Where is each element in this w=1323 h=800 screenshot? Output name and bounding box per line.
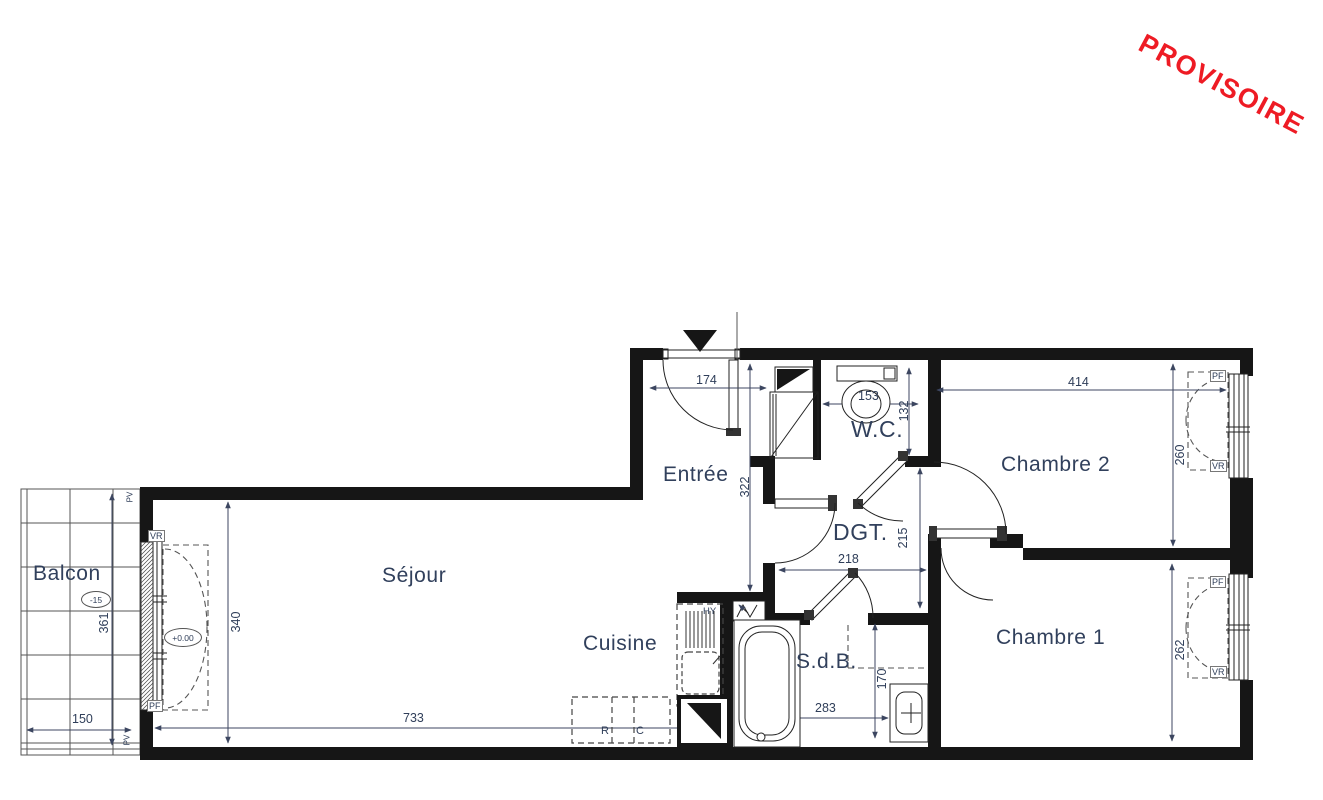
door-wc [853, 451, 908, 521]
window-tag-vr: VR [1210, 666, 1227, 678]
room-label-chambre1: Chambre 1 [996, 626, 1105, 650]
dim-balcon-width: 150 [72, 712, 93, 726]
washer-space [848, 625, 926, 668]
window-tag-pf: PF [1210, 370, 1226, 382]
bathtub [734, 620, 800, 747]
dim-ch2-depth: 260 [1173, 445, 1187, 466]
dim-sdb-width: 283 [815, 701, 836, 715]
washbasin [890, 684, 928, 742]
dim-wc-width: 153 [858, 389, 879, 403]
dim-dgt-width: 218 [838, 552, 859, 566]
dim-entree-depth: 322 [738, 477, 752, 498]
entry-door-opening [663, 349, 740, 359]
floor-plan-drawing [0, 0, 1323, 800]
appliance-label-cooker: C [636, 725, 644, 737]
window-tag-vr: VR [148, 530, 165, 542]
dim-dgt-depth: 215 [896, 528, 910, 549]
technical-shaft-kitchen [679, 697, 729, 745]
elevation-balcon: -15 [81, 591, 111, 608]
room-label-balcon: Balcon [33, 562, 101, 586]
room-label-cuisine: Cuisine [583, 632, 657, 656]
room-label-sdb: S.d.B. [796, 650, 857, 674]
room-label-chambre2: Chambre 2 [1001, 453, 1110, 477]
door-chambre2 [929, 462, 1007, 541]
room-label-entree: Entrée [663, 463, 728, 487]
technical-shaft-top [775, 367, 813, 392]
dim-ch2-width: 414 [1068, 375, 1089, 389]
entry-door [663, 360, 741, 436]
door-sdb [804, 568, 873, 620]
dim-sdb-depth: 170 [875, 669, 889, 690]
closet [770, 392, 818, 458]
window-tag-pv: PV [123, 735, 132, 746]
window-tag-vr: VR [1210, 460, 1227, 472]
window-tag-pf: PF [147, 700, 163, 712]
dim-balcon-depth: 361 [97, 613, 111, 634]
chambre1-window [1186, 574, 1250, 680]
dim-sejour-depth: 340 [229, 612, 243, 633]
elevation-interior: +0.00 [164, 628, 202, 647]
room-label-sejour: Séjour [382, 564, 446, 588]
kitchen-sink-unit [677, 604, 723, 706]
dim-sejour-width: 733 [403, 711, 424, 725]
floor-plan: PROVISOIRE Balcon Séjour Cuisine Entrée … [0, 0, 1323, 800]
door-sejour-dgt [775, 495, 837, 563]
dim-entree-width: 174 [696, 373, 717, 387]
appliance-label-fridge: R [601, 725, 609, 737]
door-chambre1 [941, 548, 993, 600]
sejour-window [141, 542, 208, 710]
vent-box [733, 601, 765, 621]
dim-ch1-depth: 262 [1173, 640, 1187, 661]
sink-tag-hy: HY [703, 606, 716, 617]
window-tag-pv: PV [126, 492, 135, 503]
room-label-wc: W.C. [851, 416, 903, 443]
window-tag-pf: PF [1210, 576, 1226, 588]
room-label-dgt: DGT. [833, 519, 888, 546]
dim-wc-depth: 132 [897, 401, 911, 422]
kitchen-counter [572, 697, 670, 743]
